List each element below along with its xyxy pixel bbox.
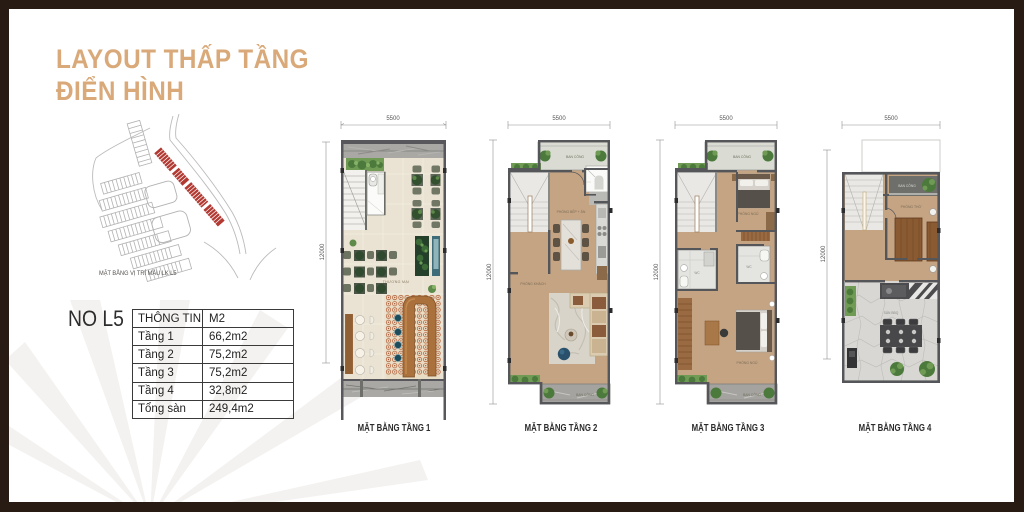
svg-text:WC: WC xyxy=(694,271,700,275)
svg-text:PHÒNG BẾP + ĂN: PHÒNG BẾP + ĂN xyxy=(557,209,586,214)
svg-text:12000: 12000 xyxy=(654,263,660,280)
svg-text:5500: 5500 xyxy=(884,116,898,122)
svg-text:PHÒNG THỜ: PHÒNG THỜ xyxy=(901,204,922,209)
svg-text:12000: 12000 xyxy=(487,263,493,280)
svg-text:PHÒNG NGỦ: PHÒNG NGỦ xyxy=(738,211,759,216)
svg-text:BAN CÔNG: BAN CÔNG xyxy=(743,392,761,397)
svg-text:WC: WC xyxy=(746,265,752,269)
svg-text:PHÒNG NGỦ: PHÒNG NGỦ xyxy=(737,360,758,365)
svg-text:BAN CÔNG: BAN CÔNG xyxy=(898,183,916,188)
svg-text:BAN CÔNG: BAN CÔNG xyxy=(566,154,584,159)
svg-text:5500: 5500 xyxy=(386,116,400,122)
svg-text:5500: 5500 xyxy=(552,116,566,122)
svg-text:THƯƠNG MẠI: THƯƠNG MẠI xyxy=(383,280,410,284)
svg-text:5500: 5500 xyxy=(719,116,733,122)
svg-text:PHÒNG KHÁCH: PHÒNG KHÁCH xyxy=(520,281,546,286)
svg-text:SÂN BBQ: SÂN BBQ xyxy=(884,311,899,315)
svg-text:12000: 12000 xyxy=(821,245,827,262)
svg-text:12000: 12000 xyxy=(320,243,326,260)
svg-text:BAN CÔNG: BAN CÔNG xyxy=(733,154,751,159)
svg-text:BAN CÔNG: BAN CÔNG xyxy=(576,392,594,397)
